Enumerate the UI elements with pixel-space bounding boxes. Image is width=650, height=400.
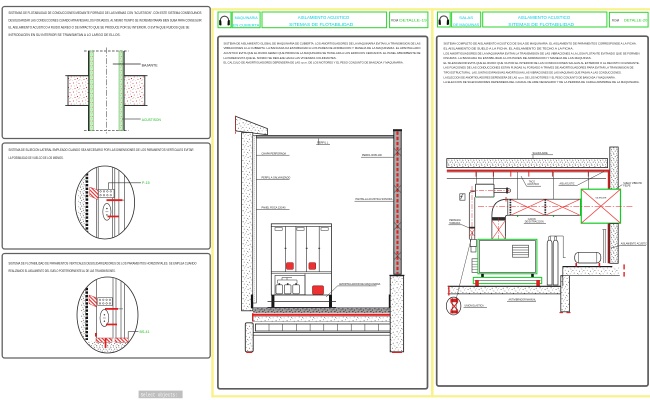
- svg-text:EN CUBIERTA: EN CUBIERTA: [233, 23, 260, 27]
- svg-text:ACUSTICO EVITA QUE EL RUIDO AE: ACUSTICO EVITA QUE EL RUIDO AEREO QUE PR…: [224, 51, 421, 55]
- svg-text:FISURAS. LA BANCADA DA ESTABIL: FISURAS. LA BANCADA DA ESTABILIDAD A LOS…: [444, 56, 592, 60]
- svg-text:VIBRACIONES A LA CUBIERTA. LA: VIBRACIONES A LA CUBIERTA. LA BANCADA DA…: [224, 46, 422, 50]
- svg-text:MAQUINARIA: MAQUINARIA: [235, 16, 259, 20]
- svg-text:Select objects:: Select objects:: [141, 393, 178, 399]
- svg-text:TACO: TACO: [529, 181, 535, 184]
- svg-text:AISLAMIENTO ACUSTICO: AISLAMIENTO ACUSTICO: [518, 15, 571, 20]
- svg-text:DETALLE-20: DETALLE-20: [624, 19, 647, 23]
- svg-text:DETALLE-19: DETALLE-19: [399, 18, 427, 22]
- svg-text:LA PARED EVITA QUE EL SONIDO S: LA PARED EVITA QUE EL SONIDO SE REFLEJE …: [224, 56, 337, 60]
- svg-text:FICHA: FICHA: [612, 19, 619, 23]
- svg-text:DE MAQUINAS: DE MAQUINAS: [453, 23, 479, 27]
- svg-text:AISLACUSTIC: AISLACUSTIC: [560, 182, 575, 185]
- svg-text:AISLAMIENTO ACUSTIC: AISLAMIENTO ACUSTIC: [621, 243, 647, 246]
- svg-text:DESOLIDARIZAR LAS CONDUCCIONES: DESOLIDARIZAR LAS CONDUCCIONES CUANDO AT…: [9, 18, 202, 22]
- svg-text:LOS AMORTIGUADORES DE LA MAQUI: LOS AMORTIGUADORES DE LA MAQUINARIA EVIT…: [444, 51, 640, 55]
- svg-text:LAS FIJACIONES DE LAS CONDUCCI: LAS FIJACIONES DE LAS CONDUCCIONES ESTAN…: [444, 66, 634, 70]
- svg-text:SISTEMAS DE FLOTABILIDAD DE CO: SISTEMAS DE FLOTABILIDAD DE CONDUCCIONES…: [9, 11, 203, 15]
- svg-text:SUELO VIBRATIC: SUELO VIBRATIC: [623, 182, 642, 185]
- svg-text:ANTIVIBRADOR MANUAL: ANTIVIBRADOR MANUAL: [509, 298, 537, 301]
- svg-text:SISTEMA COMPLETO DE AISLAMIENT: SISTEMA COMPLETO DE AISLAMIENTO ACUSTICO…: [444, 42, 637, 46]
- svg-text:SISTEMA DE FLOTABILIDAD DE PAR: SISTEMA DE FLOTABILIDAD DE PARAMENTOS VE…: [9, 261, 197, 265]
- svg-text:PERFIL ROB-100: PERFIL ROB-100: [362, 154, 382, 157]
- svg-text:CAJON: CAJON: [528, 218, 536, 221]
- svg-text:LA POSIBILIDAD DE VUELCO DE LO: LA POSIBILIDAD DE VUELCO DE LOS MISMOS.: [9, 156, 64, 160]
- svg-text:ACUSTICO: ACUSTICO: [527, 183, 539, 186]
- svg-text:EL AISLAMIENTO DE SUELO A LA F: EL AISLAMIENTO DE SUELO A LA FICHA. EL A…: [444, 47, 574, 51]
- svg-text:SALIDA AIRE: SALIDA AIRE: [533, 152, 548, 155]
- svg-text:AISLAMIENTO ACUSTICO: AISLAMIENTO ACUSTICO: [298, 15, 350, 20]
- svg-text:SISTEMA DE AISLAMIENTO GLOBAL: SISTEMA DE AISLAMIENTO GLOBAL DE MAQUINA…: [224, 41, 421, 45]
- svg-text:TARIFADA: TARIFADA: [449, 222, 461, 225]
- svg-text:FELPE: FELPE: [623, 185, 631, 187]
- svg-text:FICHA: FICHA: [391, 18, 398, 22]
- svg-text:SILENCER: SILENCER: [595, 197, 606, 199]
- svg-text:EL AISLAMIENTO ACUSTICO A RUID: EL AISLAMIENTO ACUSTICO A RUIDO AEREO O …: [9, 26, 191, 30]
- svg-text:PERSIANA: PERSIANA: [449, 219, 461, 222]
- svg-text:SISTEMA DE SUJECION LATERAL EM: SISTEMA DE SUJECION LATERAL EMPLEADO CUA…: [9, 148, 194, 152]
- svg-text:TIPO ESTRUCTURAL. LAS JUNTAS E: TIPO ESTRUCTURAL. LAS JUNTAS EXPANSIVAS …: [444, 71, 622, 75]
- svg-text:LA ELECCION DE AMORTIGUADORES: LA ELECCION DE AMORTIGUADORES DEPENDERA …: [444, 75, 616, 79]
- svg-text:PANTALLA ACUSTICA SONORA: PANTALLA ACUSTICA SONORA: [356, 198, 393, 201]
- svg-text:REALIZAMOS EL AISLAMIENTO DEL: REALIZAMOS EL AISLAMIENTO DEL SUELO POST…: [9, 269, 116, 273]
- svg-text:BAJANTE: BAJANTE: [142, 63, 159, 67]
- svg-text:EL CALCULO DE AMORTIGUADORES D: EL CALCULO DE AMORTIGUADORES DEPENDERA D…: [224, 61, 404, 65]
- svg-text:LA ELECCION DE SILENCIADORES D: LA ELECCION DE SILENCIADORES DEPENDERA D…: [444, 80, 640, 84]
- svg-text:ACUSTISON: ACUSTISON: [142, 118, 161, 122]
- svg-text:BS-41: BS-41: [140, 330, 150, 334]
- svg-text:UNION ELASTICA: UNION ELASTICA: [465, 304, 485, 307]
- svg-text:SITEMAS DE FLOTABILIDAD: SITEMAS DE FLOTABILIDAD: [289, 22, 353, 27]
- svg-text:PERFIL L: PERFIL L: [317, 141, 329, 145]
- svg-text:EL SILENCIADOR EVITA QUE EL RU: EL SILENCIADOR EVITA QUE EL RUIDO QUE VA…: [444, 61, 640, 65]
- svg-text:AMORTIGUADOR DE MAQUINARIA: AMORTIGUADOR DE MAQUINARIA: [339, 283, 381, 286]
- svg-text:P-15: P-15: [142, 181, 150, 185]
- svg-text:INTRODUCEN EN SU INTERIOR SE T: INTRODUCEN EN SU INTERIOR SE TRANSMITAN …: [9, 33, 121, 37]
- svg-text:SALAS: SALAS: [459, 16, 474, 20]
- svg-text:SITEMAS DE FLOTABILIDAD: SITEMAS DE FLOTABILIDAD: [508, 22, 574, 27]
- svg-text:DE EXTRACCION: DE EXTRACCION: [525, 220, 544, 223]
